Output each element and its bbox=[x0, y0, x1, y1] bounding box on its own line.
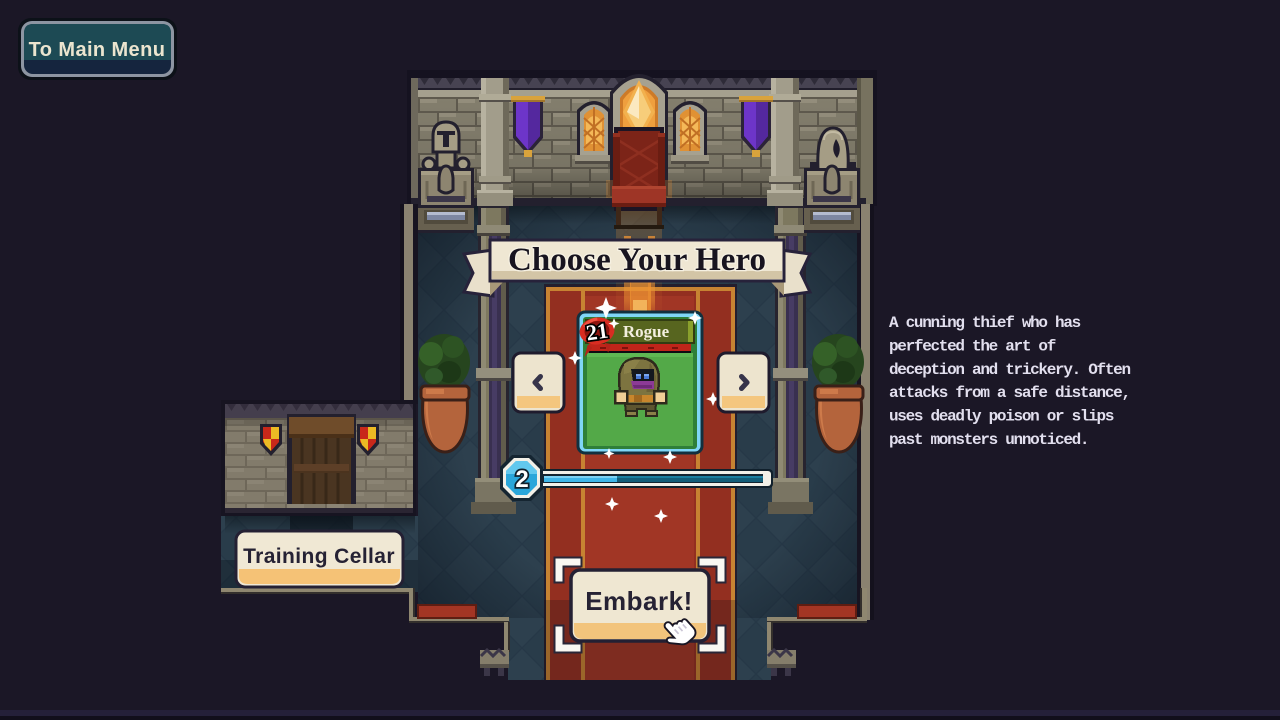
svg-text:Rogue: Rogue bbox=[623, 322, 670, 341]
svg-text:deception and trickery. Often: deception and trickery. Often bbox=[889, 361, 1130, 379]
svg-text:Embark!: Embark! bbox=[585, 586, 693, 616]
svg-text:perfected the art of: perfected the art of bbox=[889, 337, 1056, 355]
svg-text:2: 2 bbox=[515, 466, 528, 493]
svg-text:To Main Menu: To Main Menu bbox=[29, 39, 166, 61]
svg-text:uses deadly poison or slips: uses deadly poison or slips bbox=[889, 408, 1114, 426]
svg-text:Choose Your Hero: Choose Your Hero bbox=[508, 242, 766, 278]
svg-text:21: 21 bbox=[584, 318, 609, 346]
svg-text:A cunning thief who has: A cunning thief who has bbox=[889, 314, 1081, 332]
svg-text:attacks from a safe distance,: attacks from a safe distance, bbox=[889, 384, 1130, 402]
svg-text:Training Cellar: Training Cellar bbox=[243, 545, 395, 568]
svg-text:past monsters unnoticed.: past monsters unnoticed. bbox=[889, 431, 1088, 449]
